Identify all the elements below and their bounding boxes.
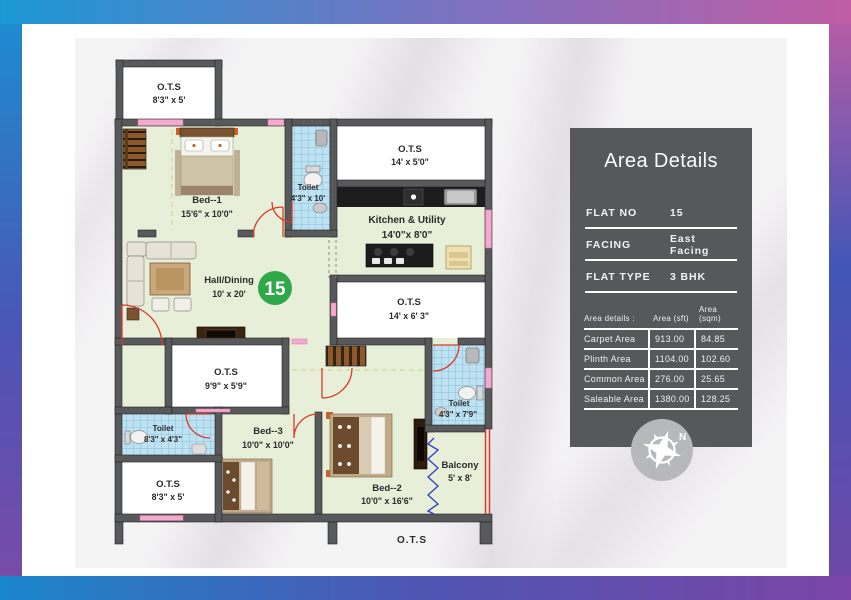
room-dims-toilet-top: 4'3" x 10' [291, 194, 325, 203]
bed-2 [326, 412, 392, 477]
row-sft: 1380.00 [648, 390, 694, 408]
room-dims-toilet-left: 8'3" x 4'3" [144, 435, 182, 444]
field-label: FLAT NO [586, 207, 670, 219]
field-label: FLAT TYPE [586, 271, 670, 283]
room-label-ots-tl: O.T.S [157, 82, 181, 93]
room-dims-ots-bl: 8'3" x 5' [152, 492, 185, 502]
room-dims-balcony: 5' x 8' [448, 473, 472, 483]
row-label: Common Area [584, 370, 648, 388]
compass-icon: N [628, 416, 696, 484]
row-label: Plinth Area [584, 350, 648, 368]
area-details-panel: Area Details FLAT NO 15 FACING East Faci… [570, 128, 752, 447]
table-row: Carpet Area 913.00 84.85 [584, 330, 738, 350]
table-row: Plinth Area 1104.00 102.60 [584, 350, 738, 370]
row-sqm: 25.65 [694, 370, 738, 388]
room-dims-bed2: 10'0" x 16'6" [361, 496, 413, 506]
field-value: 15 [670, 207, 683, 219]
room-label-ots-top: O.T.S [398, 144, 422, 155]
room-dims-bed1: 15'6" x 10'0" [181, 209, 233, 219]
flat-fields: FLAT NO 15 FACING East Facing FLAT TYPE … [570, 203, 752, 293]
room-label-ots-bl: O.T.S [156, 479, 180, 490]
field-facing: FACING East Facing [586, 235, 736, 255]
header-sqm: Area (sqm) [694, 305, 738, 323]
room-label-hall: Hall/Dining [204, 275, 254, 286]
room-label-bed2: Bed--2 [372, 483, 402, 494]
row-sft: 1104.00 [648, 350, 694, 368]
row-sft: 913.00 [648, 330, 694, 348]
room-label-toilet-left: Toilet [153, 424, 174, 433]
room-dims-kitchen: 14'0"x 8'0" [382, 230, 433, 241]
header-label: Area details : [584, 314, 648, 323]
field-flat-type: FLAT TYPE 3 BHK [586, 267, 736, 287]
unit-number-badge: 15 [258, 271, 292, 305]
unit-number: 15 [264, 279, 286, 300]
table-row: Common Area 276.00 25.65 [584, 370, 738, 390]
room-label-balcony: Balcony [442, 460, 480, 471]
room-label-toilet-right: Toilet [449, 399, 470, 408]
divider [585, 227, 737, 229]
bed-1 [175, 128, 240, 196]
area-table: Area details : Area (sft) Area (sqm) Car… [584, 305, 738, 410]
room-label-ots-mid: O.T.S [397, 297, 421, 308]
field-label: FACING [586, 239, 670, 251]
wardrobe-bed2 [326, 346, 366, 366]
row-sqm: 128.25 [694, 390, 738, 408]
area-table-header: Area details : Area (sft) Area (sqm) [584, 305, 738, 330]
row-label: Carpet Area [584, 330, 648, 348]
field-value: 3 BHK [670, 271, 706, 283]
room-label-toilet-top: Toilet [298, 183, 319, 192]
header-sft: Area (sft) [648, 314, 694, 323]
row-sft: 276.00 [648, 370, 694, 388]
wardrobe-bed1 [123, 129, 146, 169]
room-label-ots-bottom: O.T.S [397, 535, 427, 546]
room-dims-ots-mid: 14' x 6' 3" [389, 311, 429, 321]
panel-title: Area Details [570, 150, 752, 173]
row-sqm: 102.60 [694, 350, 738, 368]
room-label-kitchen: Kitchen & Utility [368, 215, 446, 226]
room-dims-bed3: 10'0" x 10'0" [242, 440, 294, 450]
row-sqm: 84.85 [694, 330, 738, 348]
field-value: East Facing [670, 233, 736, 257]
room-dims-ots-top: 14' x 5'0" [391, 157, 429, 167]
field-flat-no: FLAT NO 15 [586, 203, 736, 223]
room-label-bed3: Bed--3 [253, 426, 283, 437]
divider [585, 259, 737, 261]
compass-north-label: N [679, 432, 686, 443]
room-dims-hall: 10' x 20' [212, 289, 246, 299]
table-row: Saleable Area 1380.00 128.25 [584, 390, 738, 410]
row-label: Saleable Area [584, 390, 648, 408]
room-label-ots-midleft: O.T.S [214, 367, 238, 378]
room-dims-toilet-right: 4'3" x 7'9" [439, 410, 477, 419]
bed-3 [216, 457, 272, 513]
room-dims-ots-tl: 8'3" x 5' [153, 95, 186, 105]
room-dims-ots-midleft: 9'9" x 5'9" [205, 381, 247, 391]
divider [585, 291, 737, 293]
room-label-bed1: Bed--1 [192, 195, 222, 206]
